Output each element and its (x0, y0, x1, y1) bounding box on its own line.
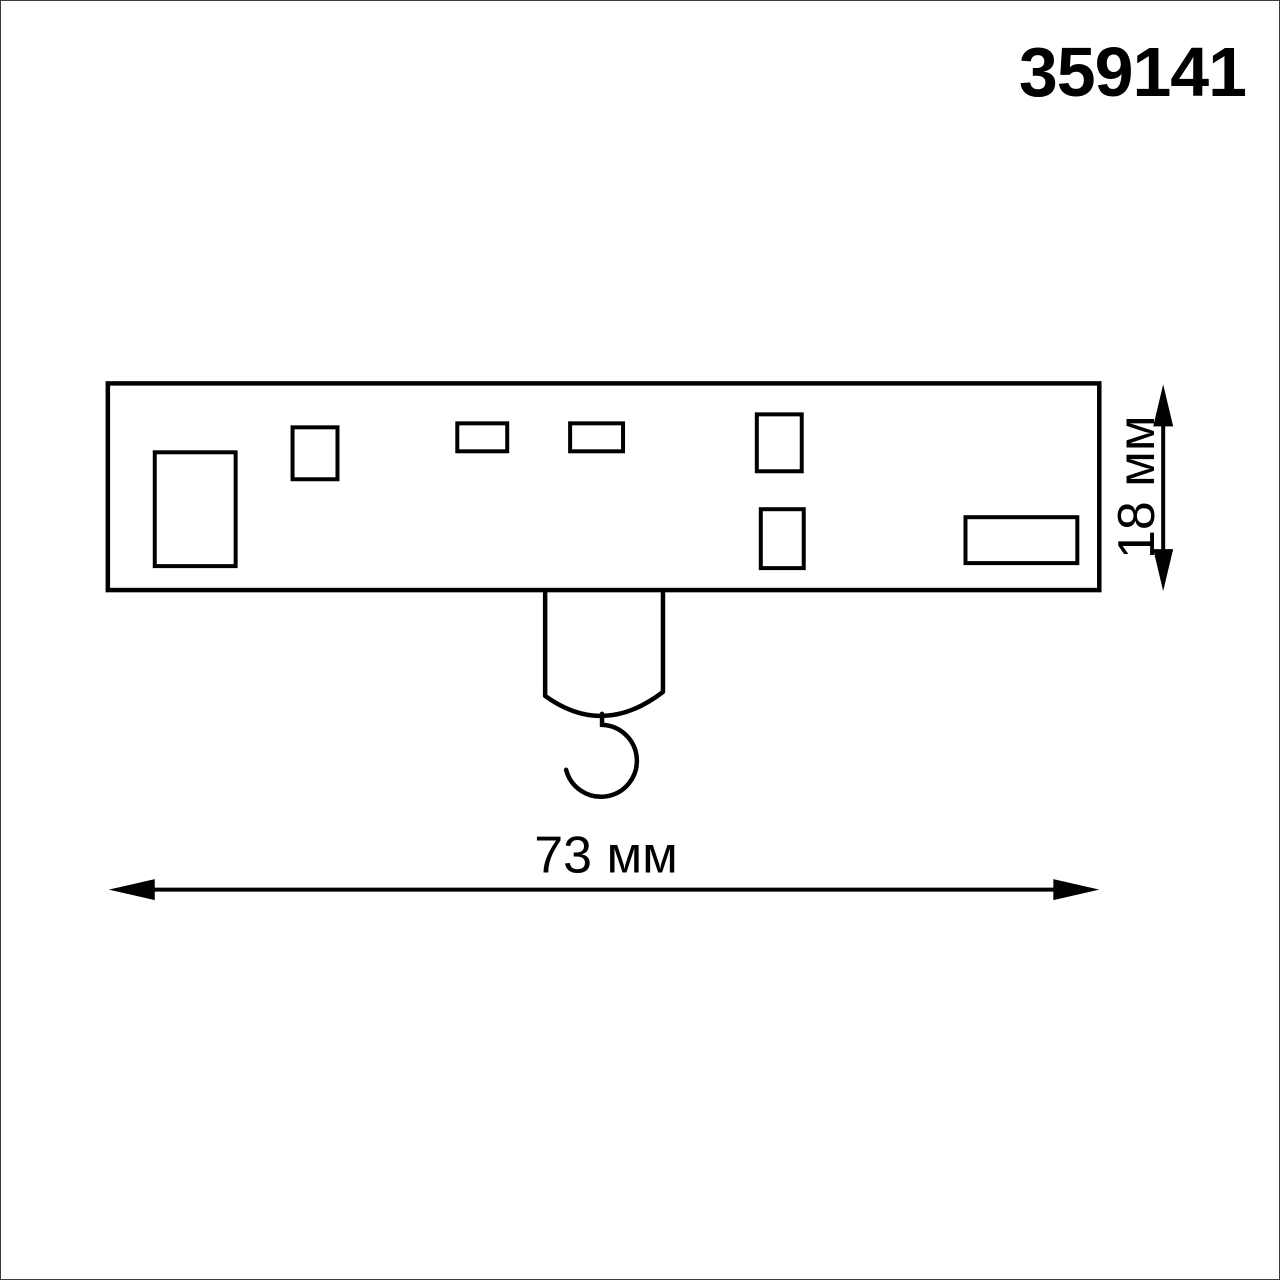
technical-drawing: 359141 18 мм 73 мм (1, 1, 1279, 1279)
device-body-outline (108, 383, 1099, 590)
cutout-right-lower (761, 509, 804, 568)
width-dimension-label: 73 мм (534, 827, 678, 885)
height-dimension-label: 18 мм (1108, 415, 1166, 559)
height-dimension: 18 мм (1108, 384, 1173, 591)
cutout-top-center-1 (457, 423, 507, 451)
mounting-stem (545, 590, 663, 716)
cutout-right-upper (757, 414, 802, 471)
product-code: 359141 (1019, 33, 1246, 111)
suspension-hook (566, 714, 637, 797)
cutout-right-wide (965, 517, 1077, 563)
width-dimension: 73 мм (109, 827, 1099, 900)
width-arrowhead-left (109, 879, 155, 900)
device-body (108, 383, 1099, 590)
width-arrowhead-right (1053, 879, 1099, 900)
cutout-left-large (155, 452, 236, 566)
product-dimension-diagram: 359141 18 мм 73 мм (0, 0, 1280, 1280)
cutout-left-small (293, 427, 338, 479)
cutout-top-center-2 (570, 423, 623, 451)
